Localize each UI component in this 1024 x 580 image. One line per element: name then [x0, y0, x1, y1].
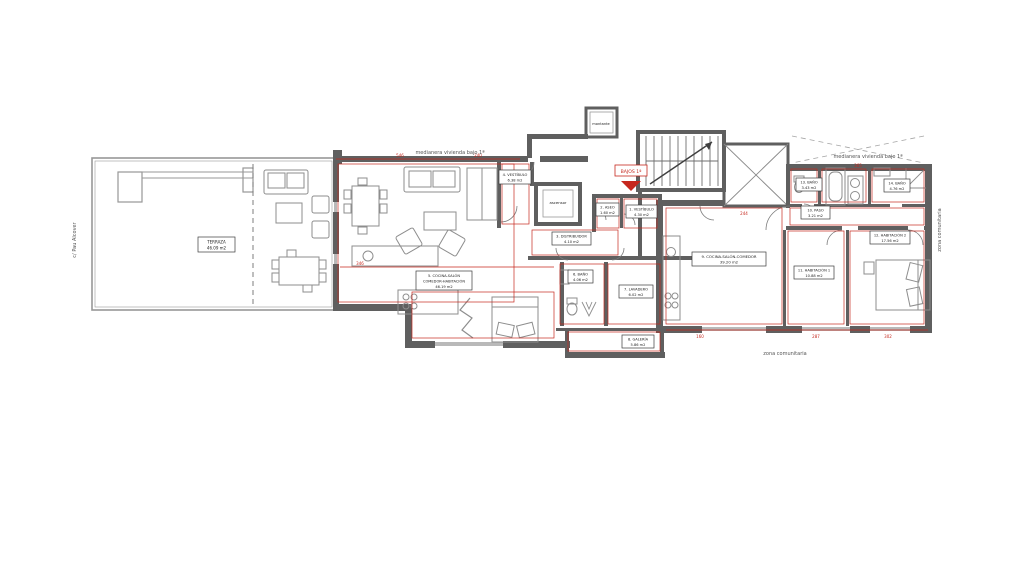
- room-label-hab11: 11. HABITACIÓN 1 10.88 m2: [794, 266, 834, 279]
- svg-text:4.10 m2: 4.10 m2: [564, 240, 579, 244]
- svg-text:1. VESTÍBULO: 1. VESTÍBULO: [629, 207, 654, 212]
- svg-text:14. BAÑO: 14. BAÑO: [888, 181, 905, 186]
- room-label-bano6: 6. BAÑO 4.06 m2: [568, 270, 593, 283]
- svg-text:302: 302: [884, 334, 892, 339]
- room-label-terraza: TERRAZA 46.09 m2: [198, 237, 235, 252]
- svg-text:11. HABITACIÓN 1: 11. HABITACIÓN 1: [798, 268, 830, 273]
- svg-text:546: 546: [396, 153, 404, 158]
- svg-text:46.09 m2: 46.09 m2: [207, 246, 227, 251]
- svg-text:244: 244: [740, 211, 748, 216]
- svg-text:160: 160: [696, 334, 704, 339]
- elevator-label: ascensor: [550, 200, 567, 205]
- room-label-distribuidor3: 3. DISTRIBUIDOR 4.10 m2: [552, 232, 591, 245]
- svg-text:9. COCINA-SALÓN-COMEDOR: 9. COCINA-SALÓN-COMEDOR: [701, 254, 756, 259]
- party-wall-left-text: medianera vivienda bajo 1ª: [415, 150, 485, 156]
- montante-label: montante: [592, 122, 610, 126]
- svg-text:39.20 m2: 39.20 m2: [720, 260, 739, 265]
- svg-text:365: 365: [854, 163, 862, 168]
- room-label-lavadero7: 7. LAVADERO 6.02 m2: [619, 285, 653, 298]
- svg-text:3.21 m2: 3.21 m2: [808, 214, 823, 218]
- room-label-vestibulo1: 1. VESTÍBULO 4.30 m2: [626, 205, 657, 218]
- svg-text:12. HABITACIÓN 2: 12. HABITACIÓN 2: [874, 233, 906, 238]
- room-label-vestibulo4: 4. VESTÍBULO 6.38 m2: [499, 170, 531, 184]
- room-label-cocina5: 5. COCINA-SALÓN COMEDOR-HABITACIÓN 46.19…: [416, 271, 472, 290]
- room-label-cocina9: 9. COCINA-SALÓN-COMEDOR 39.20 m2: [692, 252, 766, 266]
- room-label-galeria8: 8. GALERÍA 5.86 m2: [622, 335, 654, 348]
- svg-text:4.76 m2: 4.76 m2: [890, 187, 905, 191]
- svg-text:5. COCINA-SALÓN: 5. COCINA-SALÓN: [428, 273, 460, 278]
- entrance-tag-label: BAJOS 1ª: [621, 169, 642, 175]
- svg-text:7. LAVADERO: 7. LAVADERO: [624, 288, 648, 292]
- svg-text:10. PASO: 10. PASO: [807, 209, 824, 213]
- svg-text:46.19 m2: 46.19 m2: [435, 285, 452, 289]
- room-label-bano14: 14. BAÑO 4.76 m2: [884, 179, 910, 192]
- floor-plan-svg: montante ascensor: [0, 0, 1024, 576]
- room-label-bano13: 13. BAÑO 3.43 m2: [796, 178, 822, 191]
- left-unit-walls: [333, 134, 588, 348]
- svg-text:TERRAZA: TERRAZA: [206, 240, 226, 245]
- svg-text:10.88 m2: 10.88 m2: [805, 274, 822, 278]
- svg-text:6.02 m2: 6.02 m2: [629, 293, 644, 297]
- svg-text:17.56 m2: 17.56 m2: [881, 239, 898, 243]
- svg-text:6.38 m2: 6.38 m2: [508, 179, 523, 183]
- room-label-aseo2: 2. ASEO 1.60 m2: [596, 203, 619, 216]
- svg-text:4.30 m2: 4.30 m2: [634, 213, 649, 217]
- svg-text:8. GALERÍA: 8. GALERÍA: [628, 337, 649, 342]
- svg-text:2. ASEO: 2. ASEO: [600, 206, 615, 210]
- street-left-text: c/ Pau Alcover: [72, 221, 78, 257]
- svg-text:5.86 m2: 5.86 m2: [631, 343, 646, 347]
- communal-bottom-text: zona comunitaria: [763, 351, 806, 357]
- svg-text:1.60 m2: 1.60 m2: [600, 211, 615, 215]
- floor-plan: montante ascensor: [0, 0, 1024, 580]
- svg-text:4.06 m2: 4.06 m2: [573, 278, 588, 282]
- svg-text:4. VESTÍBULO: 4. VESTÍBULO: [503, 172, 528, 177]
- entrance-marker: BAJOS 1ª: [615, 165, 647, 191]
- svg-text:3.43 m2: 3.43 m2: [802, 186, 817, 190]
- communal-right-text: zona comunitaria: [937, 208, 943, 251]
- svg-text:13. BAÑO: 13. BAÑO: [800, 180, 817, 185]
- room-label-paso10: 10. PASO 3.21 m2: [801, 206, 830, 219]
- svg-text:COMEDOR-HABITACIÓN: COMEDOR-HABITACIÓN: [423, 279, 465, 284]
- svg-text:287: 287: [812, 334, 820, 339]
- svg-text:346: 346: [356, 261, 364, 266]
- room-label-hab12: 12. HABITACIÓN 2 17.56 m2: [870, 231, 910, 244]
- terrace-furniture: [264, 170, 329, 292]
- svg-text:6. BAÑO: 6. BAÑO: [573, 272, 588, 277]
- svg-text:3. DISTRIBUIDOR: 3. DISTRIBUIDOR: [556, 235, 587, 239]
- terrace-walls: [92, 158, 335, 310]
- party-wall-right-text: medianera vivienda bajo 1ª: [833, 154, 903, 160]
